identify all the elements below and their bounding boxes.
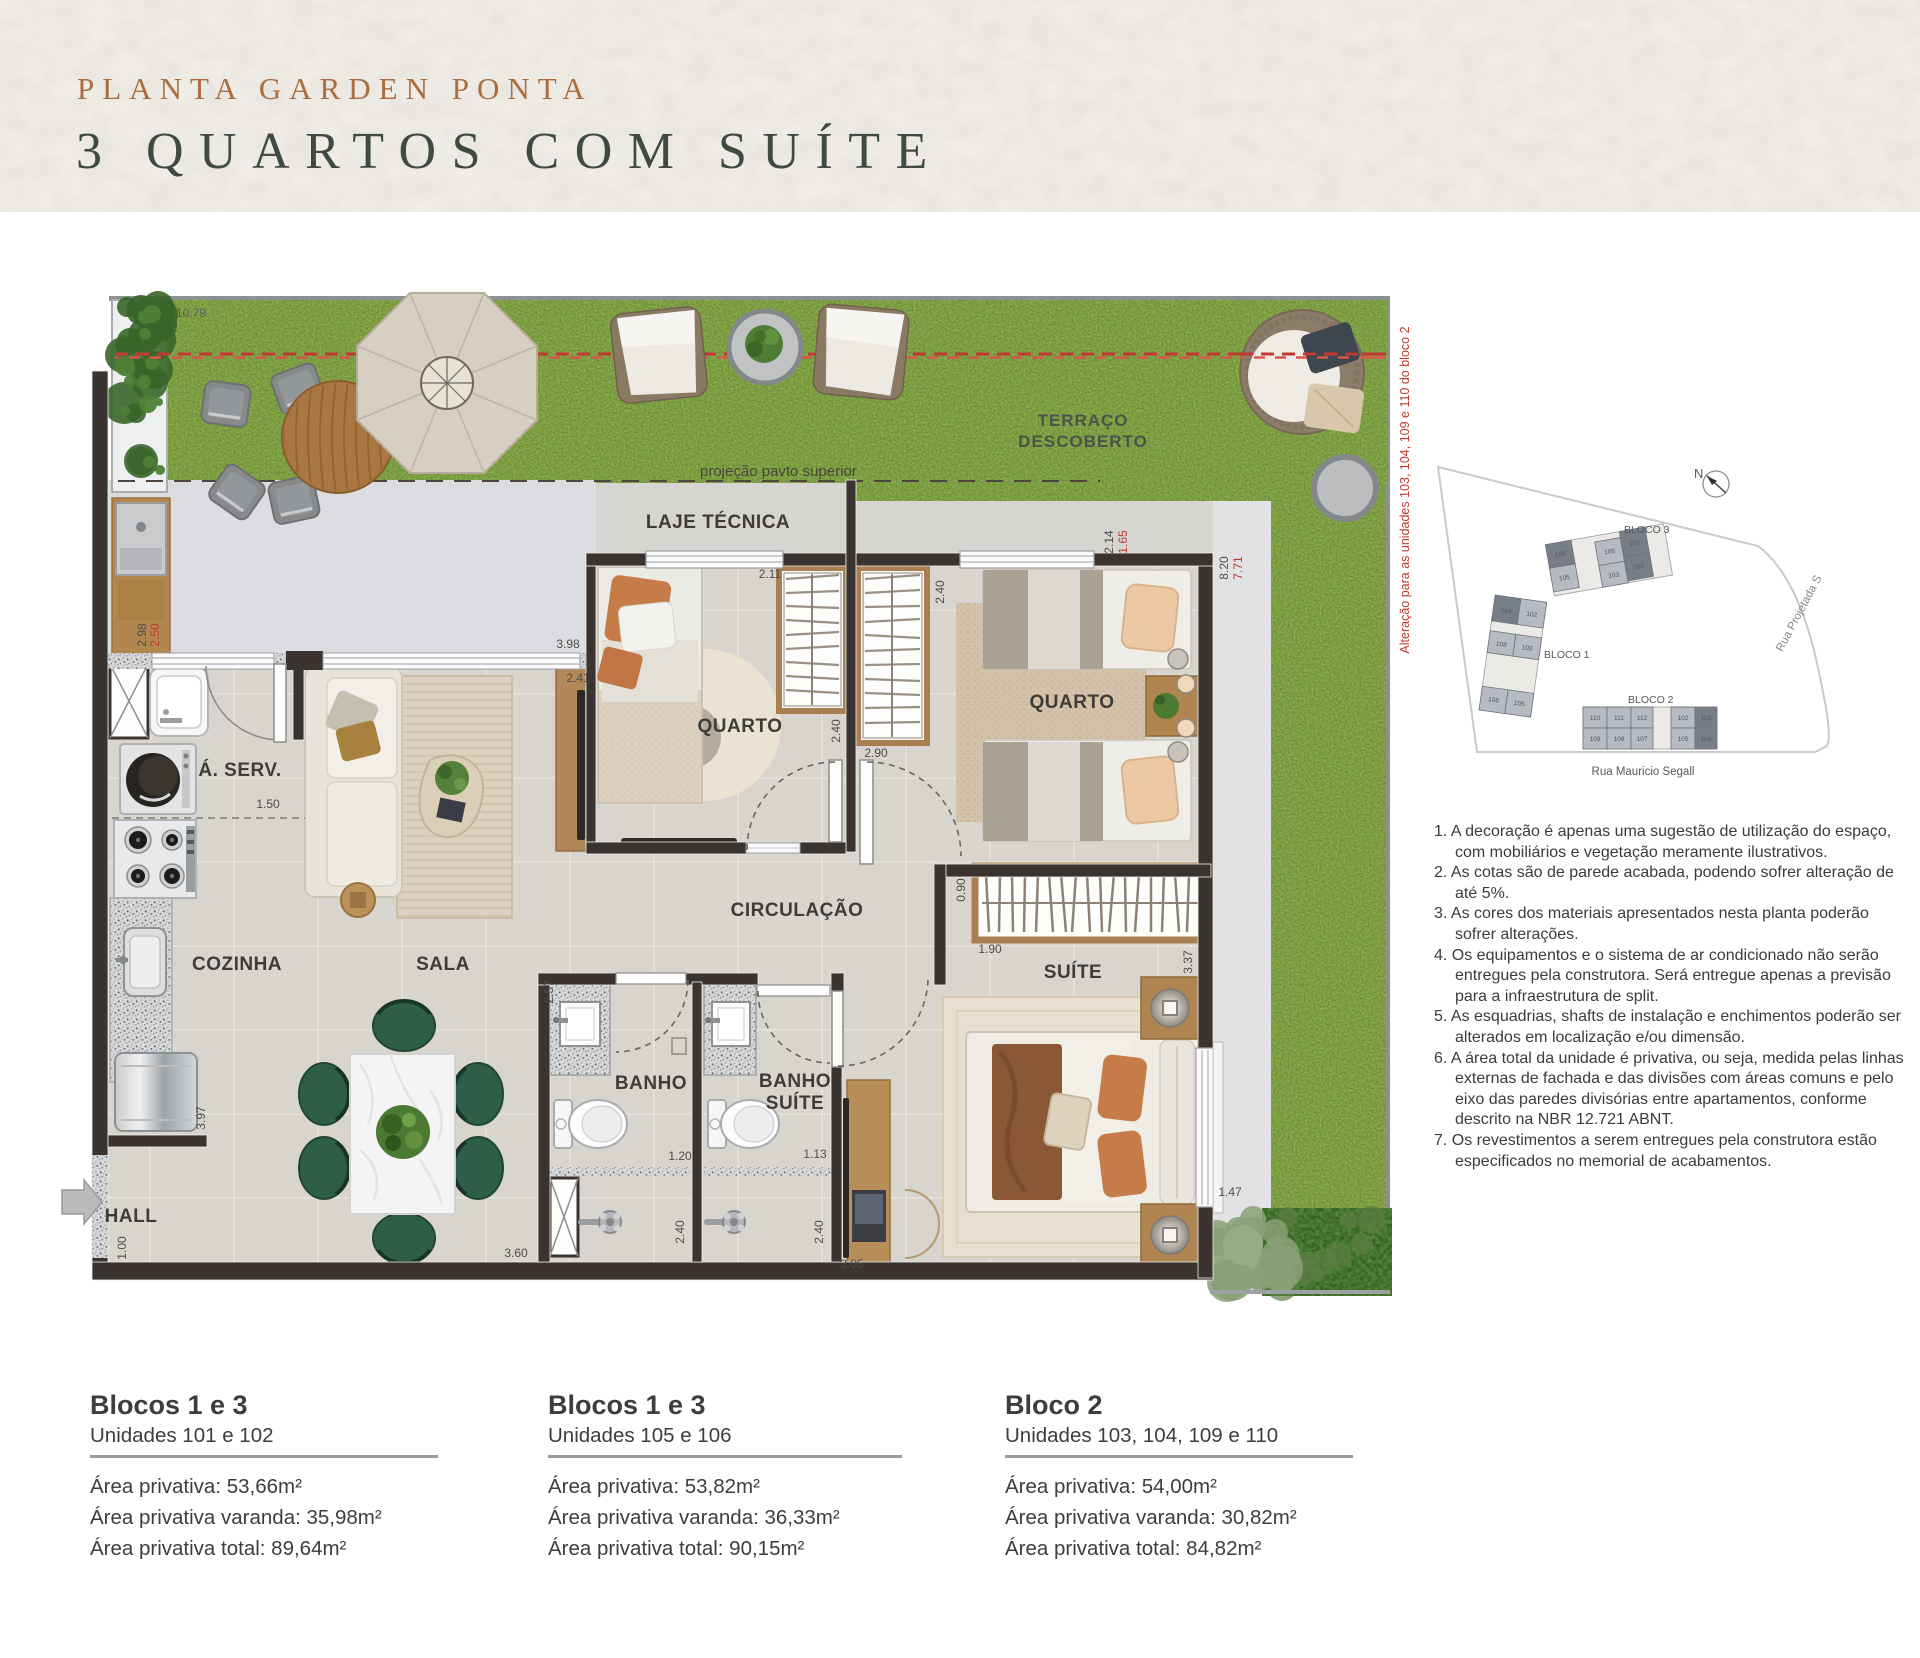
svg-text:1.20: 1.20 (668, 1149, 692, 1163)
svg-text:0.90: 0.90 (954, 878, 968, 902)
svg-text:SUÍTE: SUÍTE (1044, 961, 1102, 983)
svg-text:112: 112 (1637, 715, 1648, 722)
svg-text:108: 108 (1614, 736, 1625, 743)
svg-text:2.98: 2.98 (135, 623, 149, 647)
svg-text:1.65: 1.65 (1116, 530, 1130, 554)
svg-text:1.47: 1.47 (1218, 1185, 1242, 1199)
svg-text:2.90: 2.90 (864, 746, 888, 760)
svg-text:2.41: 2.41 (566, 671, 590, 685)
svg-text:2.40: 2.40 (812, 1220, 826, 1244)
svg-text:2.40: 2.40 (933, 580, 947, 604)
svg-text:107: 107 (1637, 736, 1648, 743)
svg-text:Á. SERV.: Á. SERV. (198, 759, 281, 781)
svg-text:1.13: 1.13 (803, 1147, 827, 1161)
svg-text:8.20: 8.20 (1217, 556, 1231, 580)
svg-text:2.40: 2.40 (673, 1220, 687, 1244)
svg-text:DESCOBERTO: DESCOBERTO (1018, 432, 1148, 451)
svg-text:109: 109 (1590, 736, 1601, 743)
svg-text:103: 103 (1701, 715, 1712, 722)
svg-text:2.57: 2.57 (542, 980, 556, 1004)
svg-text:7.71: 7.71 (1231, 556, 1245, 580)
svg-text:Rua Mauricio Segall: Rua Mauricio Segall (1592, 766, 1695, 778)
svg-text:3.05: 3.05 (840, 1257, 864, 1271)
svg-text:1.90: 1.90 (978, 942, 1002, 956)
svg-text:BANHO: BANHO (759, 1071, 831, 1092)
svg-text:10.79: 10.79 (176, 306, 206, 320)
svg-text:CIRCULAÇÃO: CIRCULAÇÃO (731, 899, 864, 921)
svg-text:111: 111 (1614, 715, 1624, 722)
svg-text:LAJE TÉCNICA: LAJE TÉCNICA (646, 511, 790, 533)
svg-text:SALA: SALA (416, 954, 470, 975)
svg-text:COZINHA: COZINHA (192, 954, 282, 975)
svg-text:102: 102 (1678, 715, 1689, 722)
svg-text:1.50: 1.50 (256, 797, 280, 811)
svg-text:2.11: 2.11 (759, 567, 782, 581)
svg-text:3.97: 3.97 (194, 1106, 208, 1130)
svg-text:HALL: HALL (105, 1206, 158, 1227)
svg-text:N: N (1694, 466, 1703, 481)
svg-text:104: 104 (1701, 736, 1712, 743)
svg-text:Alteração para as unidades 103: Alteração para as unidades 103, 104, 109… (1398, 326, 1412, 653)
svg-text:QUARTO: QUARTO (1030, 692, 1115, 713)
svg-text:QUARTO: QUARTO (698, 716, 783, 737)
svg-text:BLOCO 1: BLOCO 1 (1544, 649, 1590, 661)
svg-text:105: 105 (1678, 736, 1689, 743)
svg-text:110: 110 (1590, 715, 1601, 722)
svg-text:BANHO: BANHO (615, 1073, 687, 1094)
svg-text:1.00: 1.00 (115, 1236, 129, 1260)
svg-text:TERRAÇO: TERRAÇO (1037, 411, 1128, 430)
svg-text:3.37: 3.37 (1181, 950, 1195, 974)
svg-text:2.50: 2.50 (148, 623, 162, 647)
svg-text:2.40: 2.40 (829, 719, 843, 743)
svg-text:BLOCO 3: BLOCO 3 (1624, 524, 1670, 536)
svg-text:SUÍTE: SUÍTE (766, 1092, 824, 1114)
svg-text:3.60: 3.60 (504, 1246, 528, 1260)
svg-text:2.14: 2.14 (1102, 530, 1116, 554)
svg-text:BLOCO 2: BLOCO 2 (1628, 694, 1674, 706)
svg-text:3.98: 3.98 (556, 637, 580, 651)
svg-text:projeção pavto superior: projeção pavto superior (700, 463, 857, 480)
